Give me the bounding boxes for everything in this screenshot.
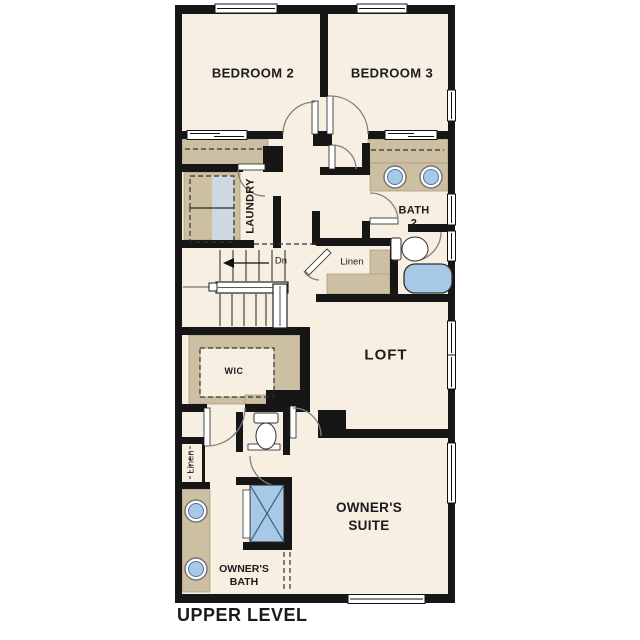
owners-suite-label-line2: SUITE [336,517,402,535]
laundry-door-leaf [238,164,265,170]
bedroom3-label: BEDROOM 3 [351,67,433,82]
newel-post [209,283,217,291]
window [448,355,456,389]
owners-suite-label-line1: OWNER'S [336,499,402,517]
bypass-door [385,131,437,140]
window [448,231,456,261]
linen-left-label: Linen [187,450,198,473]
bypass-door [187,131,247,140]
shower [243,485,284,542]
bath2-label: BATH 2 [399,204,430,229]
bath2-door-leaf [370,218,398,224]
bedroom2-door-leaf [312,101,318,134]
wic-label: WIC [225,366,244,376]
bedroom2-closet [182,139,268,165]
shower-door [243,490,250,538]
window [448,90,456,121]
owners-bath-label: OWNER'S BATH [219,563,269,589]
bedroom3-closet [368,139,448,163]
bath2-label-line1: BATH [399,204,430,217]
owners-toilet [254,413,278,449]
owners-suite-door-leaf [290,406,296,438]
floor-plan-canvas [0,0,640,640]
floor-plan-page: BEDROOM 2 BEDROOM 3 LAUNDRY BATH 2 Linen… [0,0,640,640]
wic-door-leaf [204,408,210,446]
wic-cabinet [245,395,266,404]
owners-bath-sink [185,500,207,522]
bath2-label-line2: 2 [399,217,430,230]
owners-bath-label-line2: BATH [219,576,269,589]
bedroom3-door-leaf [327,96,333,134]
bedroom2-label: BEDROOM 2 [212,67,294,82]
hall-door-leaf [329,145,335,169]
loft-label: LOFT [364,346,407,363]
bathtub [404,264,452,293]
stairs-down-label: Dn [275,257,287,268]
bath2-toilet [391,237,428,261]
linen-label: Linen [340,258,363,269]
washer-dryer-strip [212,176,233,242]
owners-bath-sink [185,558,207,580]
window [357,4,407,13]
owners-bath-label-line1: OWNER'S [219,563,269,576]
window [448,443,456,503]
floor-base [181,12,449,597]
window [448,194,456,225]
level-title: UPPER LEVEL [177,605,308,626]
linen-shelf [327,274,390,294]
laundry-label: LAUNDRY [245,178,258,233]
bath2-sink [384,166,406,188]
bath2-sink [420,166,442,188]
owners-suite-label: OWNER'S SUITE [336,499,402,535]
window [215,4,277,13]
window [348,595,425,604]
window [448,321,456,355]
